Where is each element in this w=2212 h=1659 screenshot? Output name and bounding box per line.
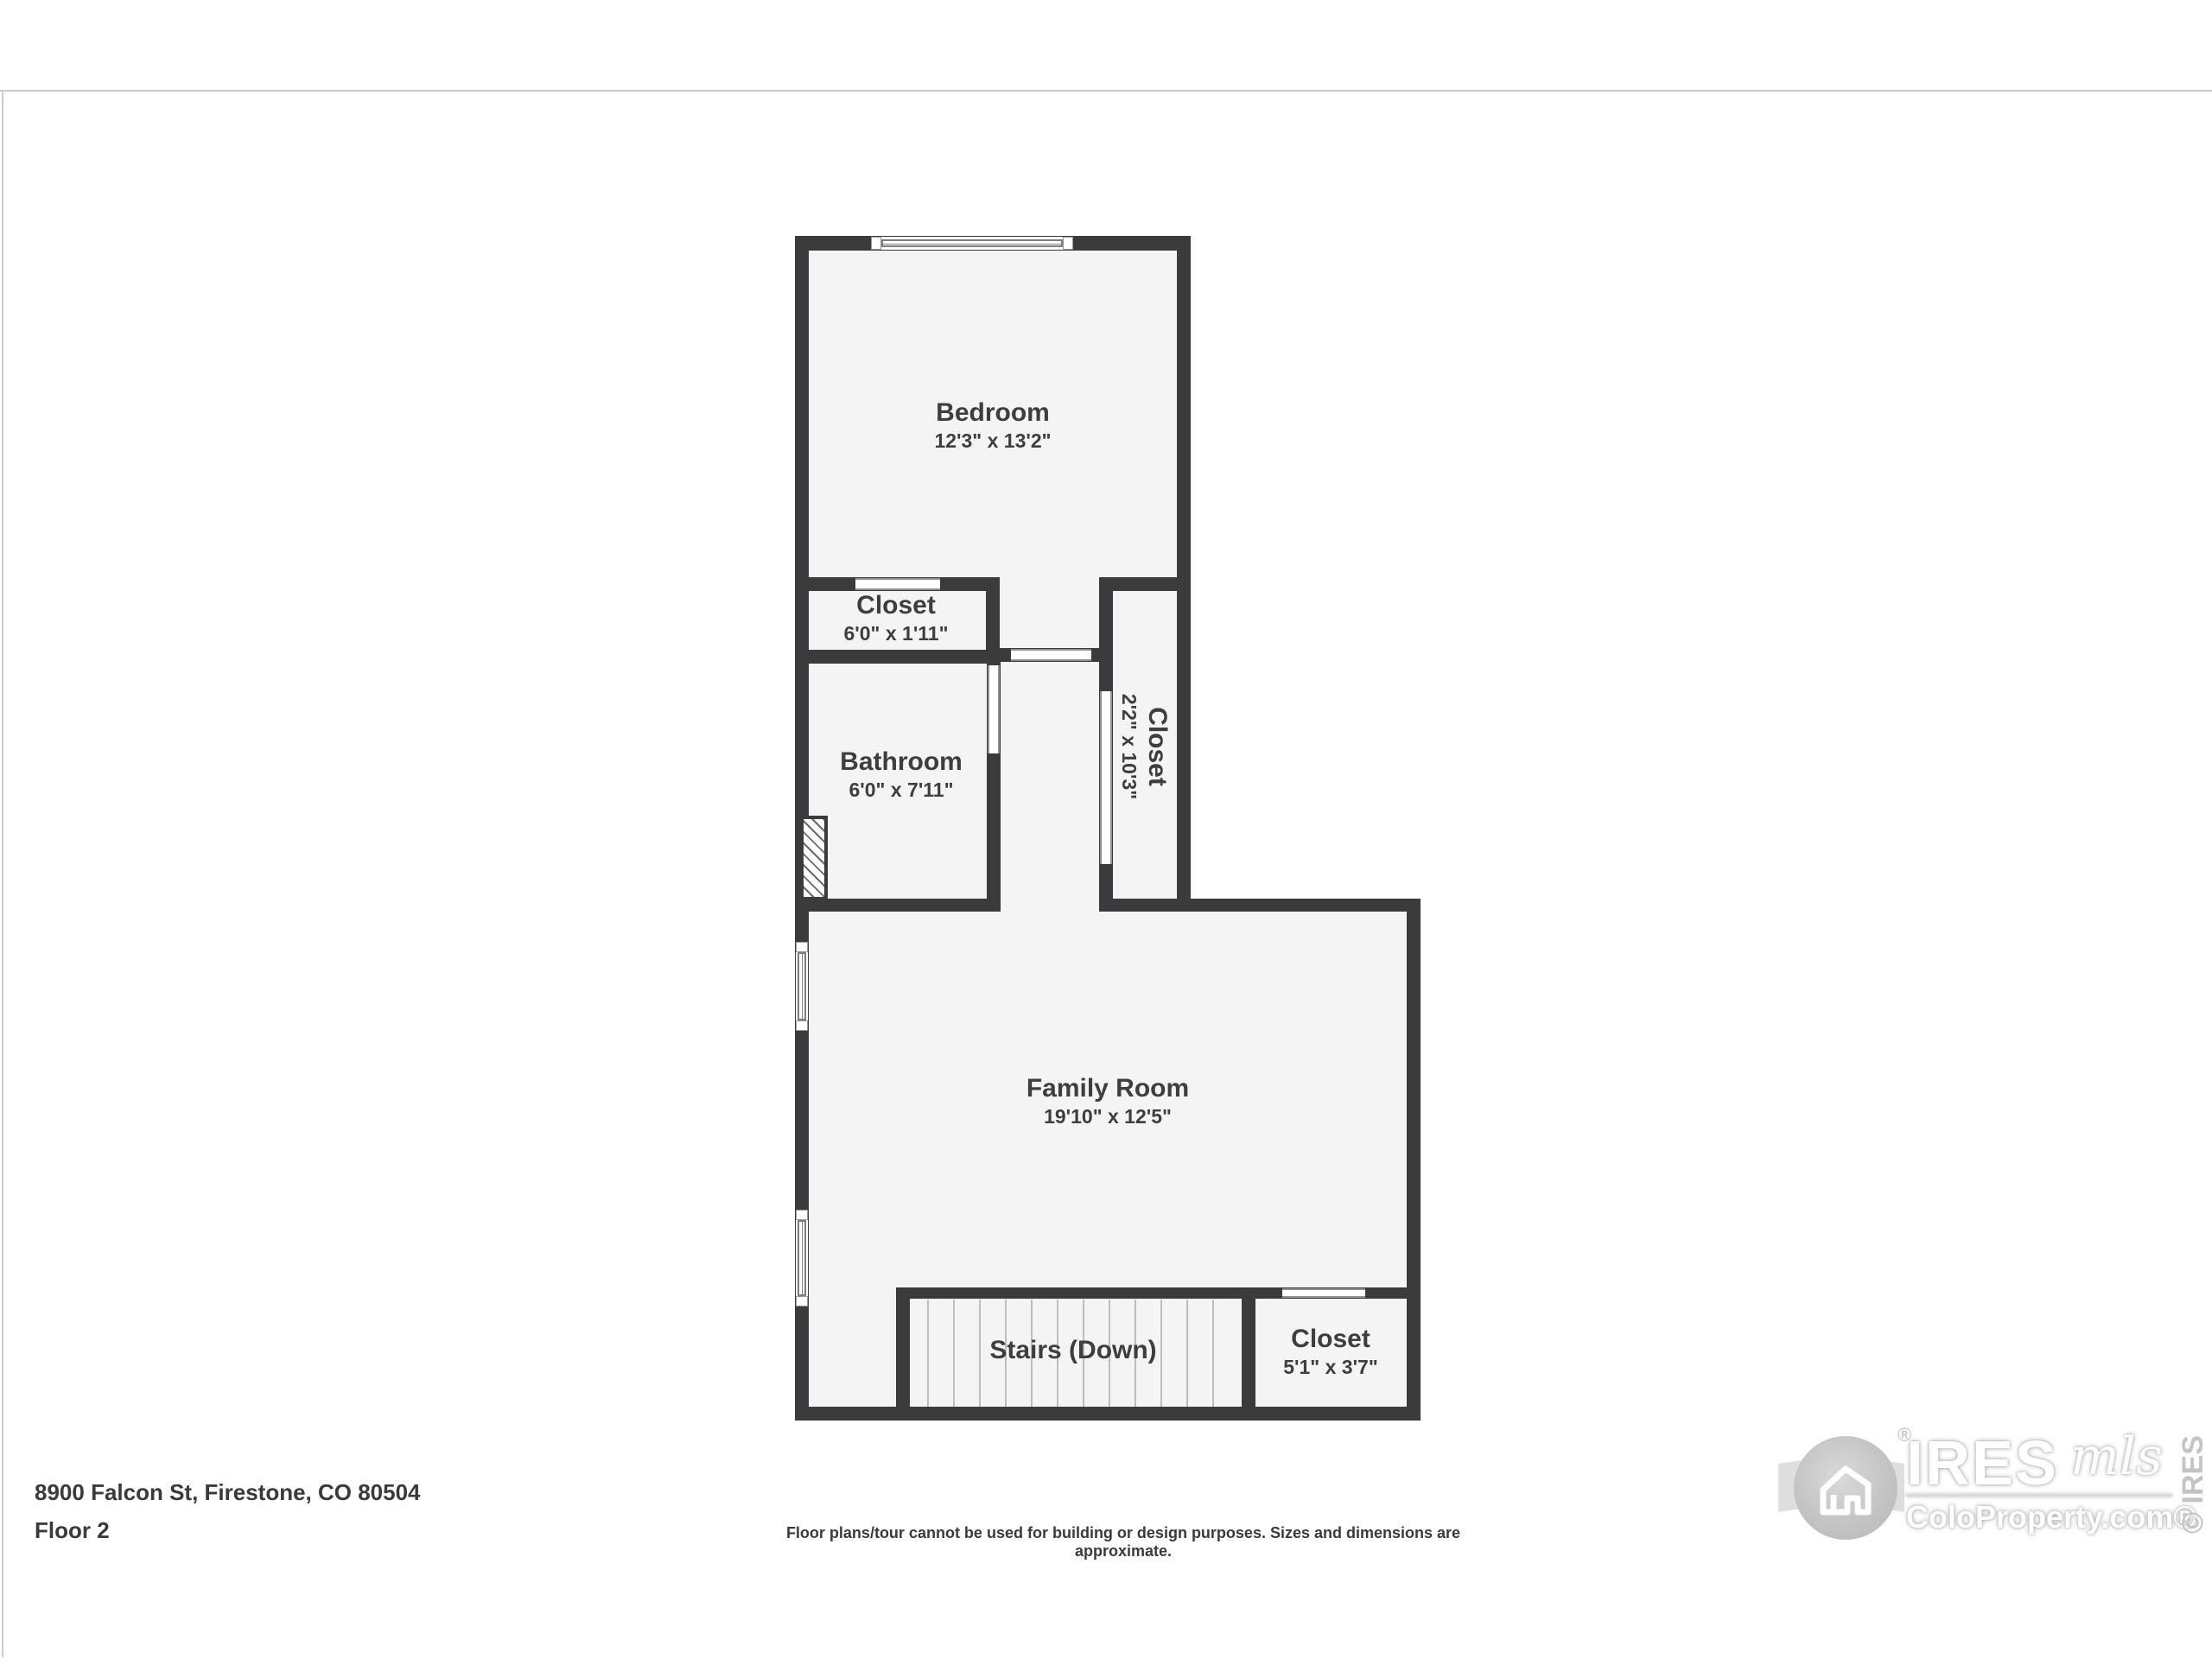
- room-name: Bedroom: [934, 398, 1051, 428]
- wall: [1407, 899, 1421, 1421]
- room-dims: 5'1" x 3'7": [1283, 1354, 1378, 1380]
- room-name: Bathroom: [840, 747, 963, 777]
- wall: [1242, 1287, 1255, 1421]
- stair-tread: [953, 1300, 955, 1407]
- hall-closet-door-opening: [1100, 691, 1112, 864]
- window-cap: [796, 1210, 808, 1220]
- window-cap: [871, 237, 881, 250]
- house-icon: [1794, 1436, 1897, 1540]
- room-name: Closet: [1283, 1325, 1378, 1354]
- property-address: 8900 Falcon St, Firestone, CO 80504: [35, 1479, 421, 1506]
- lower-closet-label: Closet 5'1" x 3'7": [1283, 1325, 1378, 1380]
- coloproperty-wordmark: ColoProperty.com®: [1906, 1500, 2196, 1535]
- room-dims: 2'2" x 10'3": [1116, 694, 1142, 799]
- room-name: Family Room: [1027, 1074, 1189, 1103]
- bedroom-label: Bedroom 12'3" x 13'2": [934, 398, 1051, 454]
- stair-tread: [927, 1300, 929, 1407]
- room-name: Closet: [1142, 694, 1172, 799]
- floor-label: Floor 2: [35, 1517, 110, 1544]
- window-cap: [796, 1296, 808, 1306]
- page-border-left: [2, 90, 3, 1657]
- room-dims: 6'0" x 7'11": [840, 777, 963, 803]
- window-glass: [798, 1220, 806, 1296]
- floor-plan-page: { "page": { "address": "8900 Falcon St, …: [0, 0, 2212, 1659]
- bedroom-door-opening: [1011, 649, 1091, 661]
- window-cap: [1063, 237, 1073, 250]
- stairs-label: Stairs (Down): [989, 1336, 1156, 1365]
- bathroom-door-opening: [988, 665, 1000, 753]
- bedroom-window: [871, 237, 1073, 250]
- closet-sliding-door: [855, 578, 940, 590]
- room-name: Stairs (Down): [989, 1336, 1156, 1365]
- room-dims: 19'10" x 12'5": [1027, 1103, 1189, 1129]
- wall: [1099, 899, 1421, 912]
- disclaimer-text: Floor plans/tour cannot be used for buil…: [773, 1524, 1473, 1560]
- closet-top-label: Closet 6'0" x 1'11": [843, 591, 948, 646]
- logo-divider: [1906, 1494, 2172, 1497]
- ires-logo-circle: [1794, 1436, 1897, 1540]
- family-room-label: Family Room 19'10" x 12'5": [1027, 1074, 1189, 1129]
- copyright-vertical: © IRES: [2176, 1424, 2210, 1545]
- page-border-top: [0, 90, 2212, 92]
- lower-closet-door-opening: [1282, 1288, 1365, 1298]
- mls-script: mls: [2070, 1426, 2163, 1488]
- bathroom-label: Bathroom 6'0" x 7'11": [840, 747, 963, 803]
- stair-tread: [979, 1300, 981, 1407]
- window-cap: [796, 942, 808, 952]
- stair-tread: [1160, 1300, 1162, 1407]
- hall-closet-label: Closet 2'2" x 10'3": [1116, 694, 1172, 799]
- stair-tread: [1212, 1300, 1214, 1407]
- wall: [795, 1407, 1421, 1421]
- family-room-window-lower: [796, 1210, 808, 1306]
- window-glass: [798, 952, 806, 1020]
- wall: [795, 899, 1001, 912]
- shower-hatch: [800, 816, 828, 900]
- room-dims: 6'0" x 1'11": [843, 620, 948, 646]
- room-dims: 12'3" x 13'2": [934, 428, 1051, 454]
- wall: [795, 650, 1000, 664]
- wall: [1177, 236, 1191, 912]
- ires-wordmark: IRES: [1906, 1433, 2058, 1495]
- wall: [896, 1287, 910, 1421]
- window-glass: [881, 239, 1063, 247]
- room-name: Closet: [843, 591, 948, 620]
- stair-tread: [1186, 1300, 1188, 1407]
- family-room-window-upper: [796, 942, 808, 1031]
- window-cap: [796, 1020, 808, 1031]
